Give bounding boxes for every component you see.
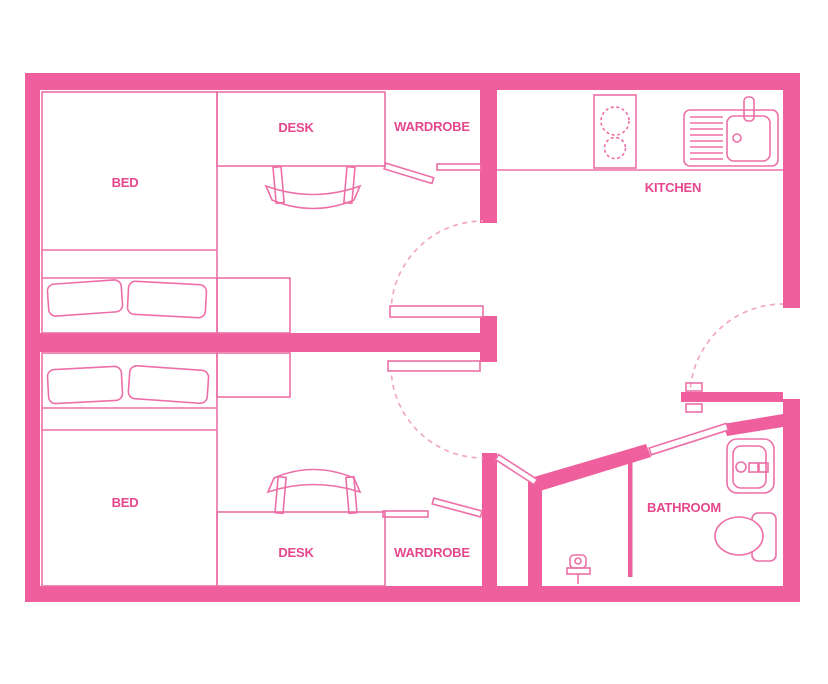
door-top-bedroom: [390, 306, 483, 317]
door-handle-part: [686, 383, 702, 391]
bed-bottom-outline: [42, 353, 217, 586]
chair-backrest: [266, 186, 360, 209]
bedside-unit-top: [217, 278, 290, 333]
toilet-bowl: [715, 517, 763, 555]
wall-shower-partition: [628, 457, 633, 577]
burner-large: [601, 107, 629, 135]
wardrobe-bottom-door: [432, 498, 482, 517]
door-swing-top-bedroom: [391, 221, 483, 313]
stove-burners-icon: [594, 95, 636, 168]
wall-right-upper: [783, 73, 800, 308]
sink-drain: [733, 134, 741, 142]
wall-top: [25, 73, 800, 90]
wardrobe-top-door: [384, 163, 434, 183]
bed-top-outline: [42, 92, 217, 333]
wall-bottom: [25, 586, 800, 602]
wall-divider-stub: [480, 316, 497, 362]
door-handle-part: [686, 404, 702, 412]
door-bathroom: [649, 423, 728, 454]
doors: [388, 221, 783, 485]
wall-hall-lower: [482, 453, 497, 586]
label-desk-bottom: DESK: [278, 545, 314, 560]
wall-shower-left: [528, 480, 542, 586]
door-bottom-bedroom: [388, 361, 480, 371]
bedside-unit-bottom: [217, 353, 290, 397]
wardrobe-top-rail: [437, 164, 481, 170]
door-swing-bottom-bedroom: [391, 366, 483, 458]
sink-drainboard: [690, 117, 723, 159]
label-wardrobe-top: WARDROBE: [394, 119, 470, 134]
sink-tap: [744, 97, 754, 121]
basin-tap: [736, 462, 746, 472]
kitchen: [497, 95, 783, 170]
wall-hall-upper: [480, 90, 497, 223]
pillow: [127, 281, 207, 318]
wall-room-divider: [40, 333, 480, 352]
toilet-icon: [715, 513, 776, 561]
shower-arm: [567, 568, 590, 574]
label-kitchen: KITCHEN: [645, 180, 701, 195]
label-bathroom: BATHROOM: [647, 500, 721, 515]
chair-top: [266, 167, 360, 209]
pillow: [47, 366, 123, 404]
chair-leg: [275, 477, 286, 514]
chair-leg: [273, 167, 284, 204]
door-swing-entrance: [690, 304, 783, 397]
label-wardrobe-bottom: WARDROBE: [394, 545, 470, 560]
sink-unit-outline: [684, 110, 778, 166]
floor-plan: BED DESK WARDROBE KITCHEN BED DESK WARDR…: [0, 0, 828, 684]
shower-head-icon: [567, 555, 590, 584]
chair-bottom: [268, 470, 360, 514]
burner-small: [605, 138, 626, 159]
wardrobe-bottom-rail: [383, 511, 428, 517]
kitchen-sink-icon: [684, 97, 778, 166]
bathroom-sink-icon: [727, 439, 774, 493]
stove-outline: [594, 95, 636, 168]
wall-left: [25, 73, 40, 602]
wall-bathroom-diagonal: [723, 414, 783, 436]
door-handle-knob: [681, 392, 693, 402]
shower-head: [570, 555, 586, 568]
label-bed-top: BED: [112, 175, 139, 190]
basin-tap-box: [749, 463, 758, 472]
pillow: [47, 279, 123, 316]
door-entrance-leaf: [690, 392, 783, 402]
door-shower: [495, 454, 537, 484]
pillow: [128, 365, 209, 403]
label-desk-top: DESK: [278, 120, 314, 135]
shower-head-detail: [575, 558, 581, 564]
label-bed-bottom: BED: [112, 495, 139, 510]
chair-leg: [344, 167, 355, 204]
floor-plan-canvas: BED DESK WARDROBE KITCHEN BED DESK WARDR…: [0, 0, 828, 684]
wall-right-lower: [783, 399, 800, 602]
